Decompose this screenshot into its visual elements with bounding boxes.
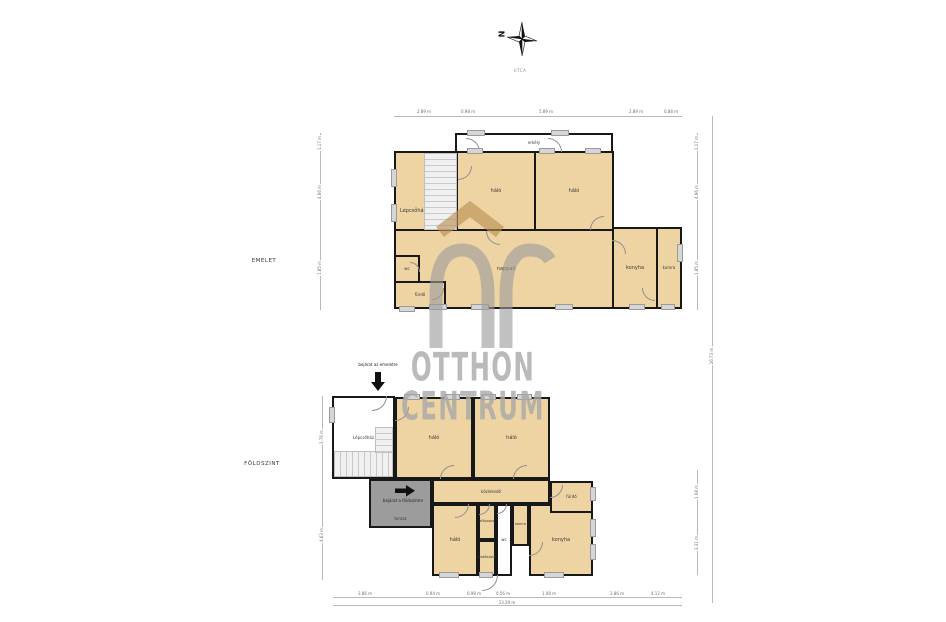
window-marker bbox=[405, 395, 419, 399]
window-marker bbox=[678, 245, 682, 261]
dimension-label: 0.94 m bbox=[425, 592, 441, 596]
window-marker bbox=[662, 305, 674, 309]
room: közlekedő bbox=[432, 479, 550, 504]
room-label: háló bbox=[506, 436, 517, 441]
room: kamra bbox=[656, 227, 682, 309]
compass: N bbox=[505, 20, 553, 60]
room-label: előszoba bbox=[479, 520, 494, 524]
room-label: fürdőszoba bbox=[477, 556, 496, 560]
dimension-label: 5.89 m bbox=[538, 110, 554, 114]
window-marker bbox=[468, 131, 484, 135]
dimension-label: 2.89 m bbox=[416, 110, 432, 114]
entrance-arrow-right-icon bbox=[395, 485, 415, 497]
dimension-line bbox=[333, 605, 682, 606]
watermark-line1: OTTHON bbox=[374, 348, 572, 387]
staircase bbox=[334, 451, 393, 477]
window-marker bbox=[330, 408, 334, 422]
staircase bbox=[375, 427, 393, 453]
window-marker bbox=[591, 520, 595, 536]
dimension-label: 26.73 m bbox=[710, 347, 714, 366]
window-marker bbox=[518, 395, 531, 399]
window-marker bbox=[545, 573, 563, 577]
room: konyha bbox=[529, 504, 593, 576]
room-label: nappali bbox=[497, 267, 515, 272]
window-marker bbox=[556, 305, 572, 309]
dimension-line bbox=[333, 597, 682, 598]
window-marker bbox=[430, 305, 446, 309]
staircase bbox=[424, 153, 457, 230]
dimension-label: 1.08 m bbox=[695, 484, 699, 500]
room: kamra bbox=[512, 504, 529, 546]
dimension-label: 0.98 m bbox=[466, 592, 482, 596]
dimension-label: 2.89 m bbox=[628, 110, 644, 114]
compass-star-icon bbox=[505, 20, 539, 58]
room-label: terasz bbox=[394, 517, 406, 521]
door-swing bbox=[482, 575, 498, 591]
dimension-label: 4.66 m bbox=[695, 184, 699, 200]
dimension-label: 4.12 m bbox=[650, 592, 666, 596]
dimension-label: 4.66 m bbox=[318, 184, 322, 200]
window-marker bbox=[591, 488, 595, 500]
room-label: konyha bbox=[626, 266, 644, 271]
window-marker bbox=[445, 395, 459, 399]
dimension-label: 0.98 m bbox=[460, 110, 476, 114]
room-label: Lépcsőház bbox=[353, 436, 374, 440]
dimension-label: 0.88 m bbox=[663, 110, 679, 114]
window-marker bbox=[540, 149, 554, 153]
window-marker bbox=[591, 545, 595, 559]
room-label: kamra bbox=[663, 266, 676, 270]
compass-north-label: N bbox=[498, 31, 506, 38]
room-label: erkély bbox=[528, 141, 540, 145]
dimension-label: 0.56 m bbox=[495, 592, 511, 596]
street-label: UTCA bbox=[495, 68, 545, 73]
upper-entrance-caption: bejárat az emeletre bbox=[358, 363, 397, 367]
window-marker bbox=[552, 131, 568, 135]
window-marker bbox=[630, 305, 644, 309]
dimension-line bbox=[320, 133, 321, 310]
window-marker bbox=[392, 205, 396, 221]
window-marker bbox=[440, 573, 458, 577]
dimension-label: 13.29 m bbox=[498, 601, 517, 605]
window-marker bbox=[472, 305, 488, 309]
dimension-label: 1.17 m bbox=[695, 135, 699, 151]
window-marker bbox=[400, 307, 414, 311]
dimension-line bbox=[394, 116, 682, 117]
room-label: wc bbox=[501, 538, 506, 542]
dimension-label: 3.31 m bbox=[695, 535, 699, 551]
window-marker bbox=[482, 395, 495, 399]
room-label: fürdő bbox=[415, 293, 426, 297]
window-marker bbox=[586, 149, 600, 153]
dimension-label: 1.85 m bbox=[318, 260, 322, 276]
room-label: wc bbox=[404, 267, 409, 271]
window-marker bbox=[392, 170, 396, 186]
dimension-line bbox=[322, 396, 323, 580]
window-marker bbox=[468, 149, 482, 153]
dimension-label: 2.86 m bbox=[609, 592, 625, 596]
room-label: fürdő bbox=[566, 495, 577, 499]
dimension-label: 4.63 m bbox=[320, 527, 324, 543]
dimension-label: 1.85 m bbox=[695, 260, 699, 276]
room: fürdőszoba bbox=[478, 540, 496, 576]
room-label: kamra bbox=[515, 523, 526, 527]
room-label: közlekedő bbox=[481, 490, 501, 494]
room-label: konyha bbox=[552, 538, 570, 543]
room-label: háló bbox=[569, 189, 580, 194]
room-label: háló bbox=[429, 436, 440, 441]
room-label: háló bbox=[450, 538, 461, 543]
dimension-label: 3.86 m bbox=[357, 592, 373, 596]
dimension-line bbox=[697, 133, 698, 310]
floorplan-canvas: N UTCA EMELET FÖLDSZINT erkélyLépcsőházh… bbox=[0, 0, 946, 622]
window-marker bbox=[480, 573, 492, 577]
dimension-label: 1.08 m bbox=[541, 592, 557, 596]
room: háló bbox=[456, 151, 536, 231]
room: wc bbox=[496, 504, 512, 576]
room-label: Lépcsőház bbox=[400, 209, 426, 214]
ground-entrance-caption: bejárat a földszintre bbox=[383, 499, 423, 503]
floor-title-emelet: EMELET bbox=[234, 259, 294, 265]
floor-title-foldszint: FÖLDSZINT bbox=[232, 462, 292, 468]
entrance-arrow-down-icon bbox=[371, 372, 385, 392]
dimension-label: 3.76 m bbox=[320, 429, 324, 445]
room-label: háló bbox=[491, 189, 502, 194]
room: háló bbox=[473, 397, 550, 479]
dimension-label: 1.17 m bbox=[318, 135, 322, 151]
